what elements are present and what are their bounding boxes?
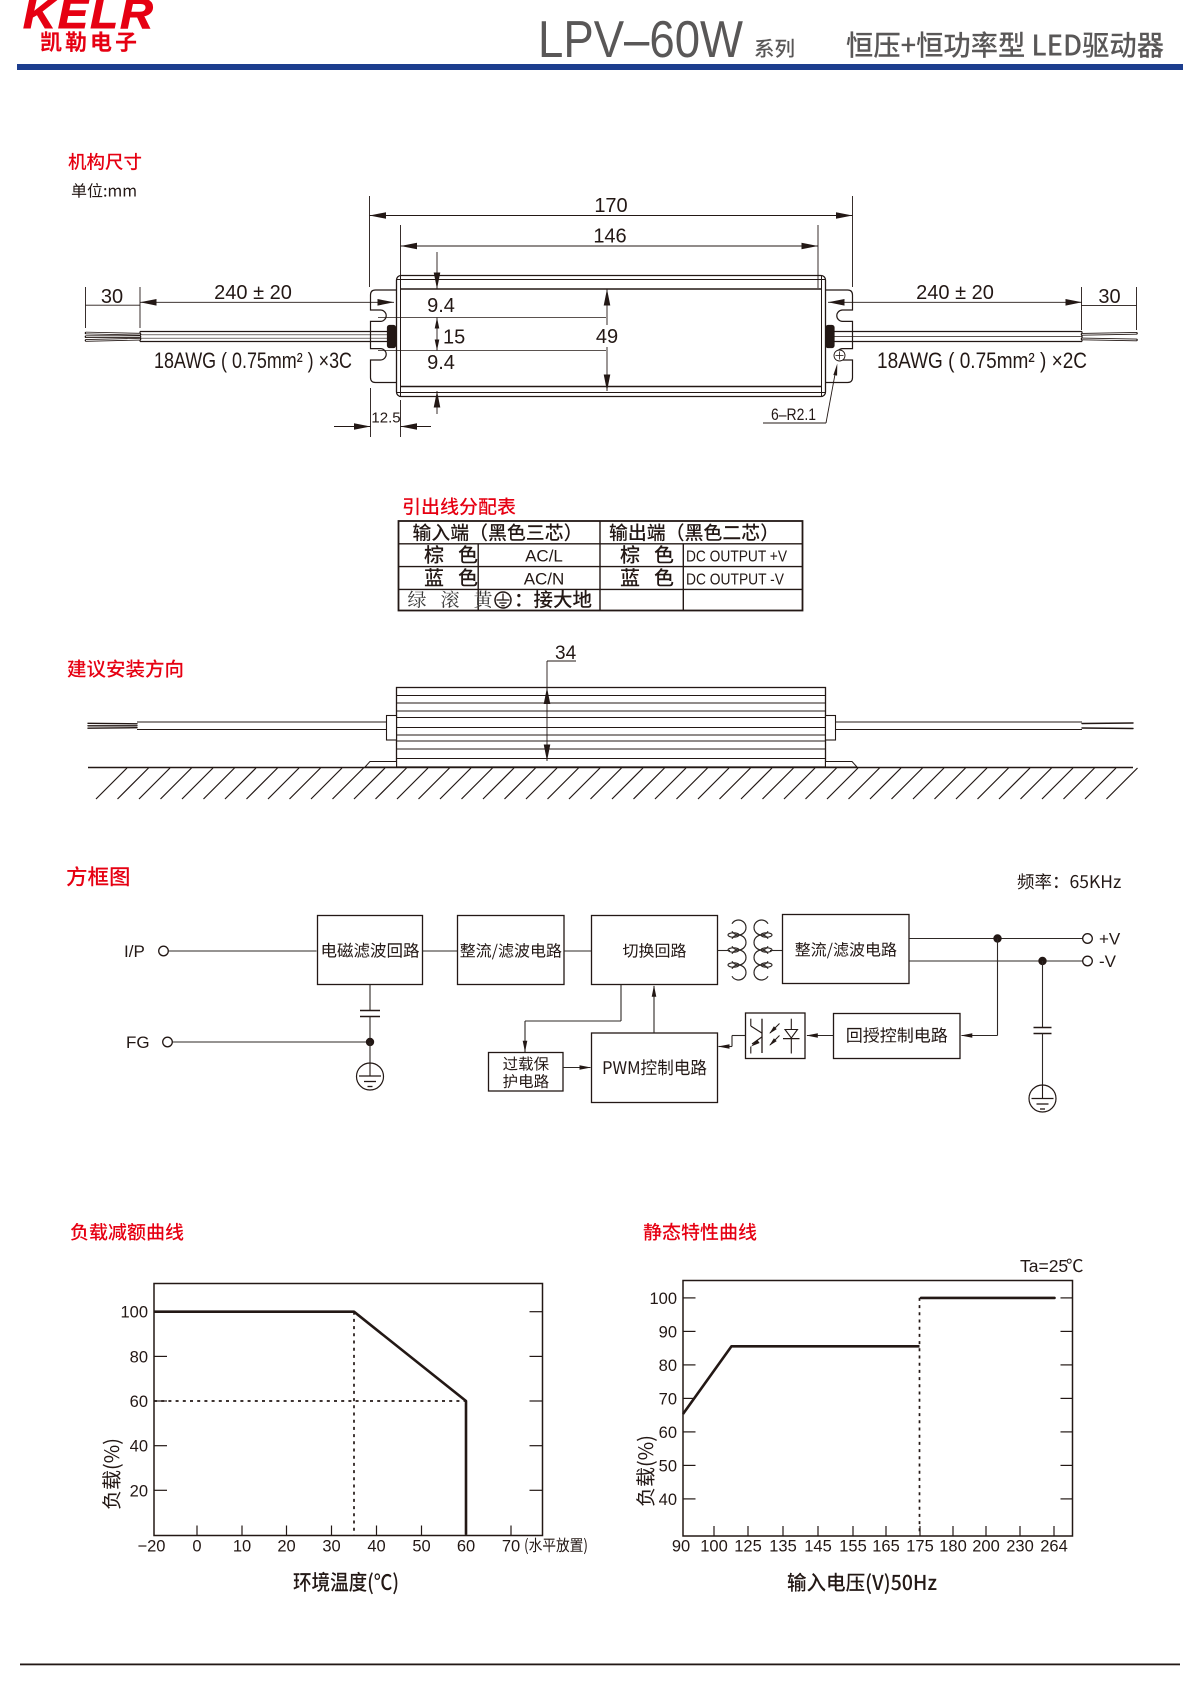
svg-text:70: 70: [502, 1538, 520, 1556]
svg-text:AC/L: AC/L: [525, 547, 563, 566]
svg-text:30: 30: [1098, 286, 1120, 308]
svg-text:230: 230: [1006, 1538, 1034, 1556]
svg-text:18AWG ( 0.75mm² ) ×2C: 18AWG ( 0.75mm² ) ×2C: [877, 348, 1087, 373]
svg-text:100: 100: [649, 1290, 677, 1308]
svg-text:60: 60: [130, 1393, 148, 1411]
svg-text:146: 146: [593, 226, 626, 248]
svg-text:Ta=25: Ta=25: [1020, 1256, 1068, 1276]
svg-text:18AWG ( 0.75mm² ) ×3C: 18AWG ( 0.75mm² ) ×3C: [154, 348, 352, 373]
svg-text:170: 170: [594, 195, 627, 217]
svg-text:0: 0: [192, 1538, 201, 1556]
svg-text:9.4: 9.4: [427, 295, 455, 317]
svg-text:10: 10: [233, 1538, 251, 1556]
svg-text:100: 100: [700, 1538, 728, 1556]
svg-text:+V: +V: [1099, 930, 1121, 949]
svg-text:200: 200: [972, 1538, 1000, 1556]
svg-text:LPV–60W: LPV–60W: [538, 11, 743, 69]
svg-text:155: 155: [839, 1538, 867, 1556]
svg-text:−20: −20: [138, 1538, 166, 1556]
svg-text:AC/N: AC/N: [524, 569, 565, 588]
svg-text:175: 175: [906, 1538, 934, 1556]
svg-text:50: 50: [412, 1538, 430, 1556]
svg-text:80: 80: [659, 1357, 677, 1375]
svg-text:40: 40: [130, 1438, 148, 1456]
svg-text:30: 30: [322, 1538, 340, 1556]
svg-text:60: 60: [659, 1424, 677, 1442]
svg-text:70: 70: [659, 1390, 677, 1408]
svg-text:240 ± 20: 240 ± 20: [916, 282, 994, 304]
svg-text:FG: FG: [126, 1033, 150, 1052]
svg-text:20: 20: [277, 1538, 295, 1556]
svg-text:34: 34: [555, 643, 577, 664]
svg-text:-V: -V: [1099, 952, 1117, 971]
svg-text:180: 180: [939, 1538, 967, 1556]
svg-text:KELR: KELR: [23, 0, 155, 38]
svg-text:90: 90: [672, 1538, 690, 1556]
svg-text:6–R2.1: 6–R2.1: [771, 405, 816, 424]
svg-text:80: 80: [130, 1348, 148, 1366]
svg-text:DC OUTPUT -V: DC OUTPUT -V: [686, 571, 785, 588]
svg-text:145: 145: [804, 1538, 832, 1556]
svg-text:264: 264: [1040, 1538, 1068, 1556]
svg-text:20: 20: [130, 1482, 148, 1500]
svg-text:165: 165: [872, 1538, 900, 1556]
svg-text:90: 90: [659, 1323, 677, 1341]
svg-text:DC OUTPUT +V: DC OUTPUT +V: [686, 549, 788, 566]
svg-text:15: 15: [443, 327, 465, 349]
svg-text:40: 40: [367, 1538, 385, 1556]
svg-text:49: 49: [596, 326, 618, 348]
svg-text:240 ± 20: 240 ± 20: [214, 282, 292, 304]
svg-text:12.5: 12.5: [371, 410, 400, 427]
svg-text:9.4: 9.4: [427, 352, 455, 374]
svg-text:125: 125: [734, 1538, 762, 1556]
svg-text:50: 50: [659, 1457, 677, 1475]
svg-text:100: 100: [120, 1304, 148, 1322]
svg-text:30: 30: [101, 286, 123, 308]
svg-text:40: 40: [659, 1491, 677, 1509]
svg-text:135: 135: [769, 1538, 797, 1556]
svg-text:60: 60: [457, 1538, 475, 1556]
svg-text:I/P: I/P: [124, 942, 145, 961]
